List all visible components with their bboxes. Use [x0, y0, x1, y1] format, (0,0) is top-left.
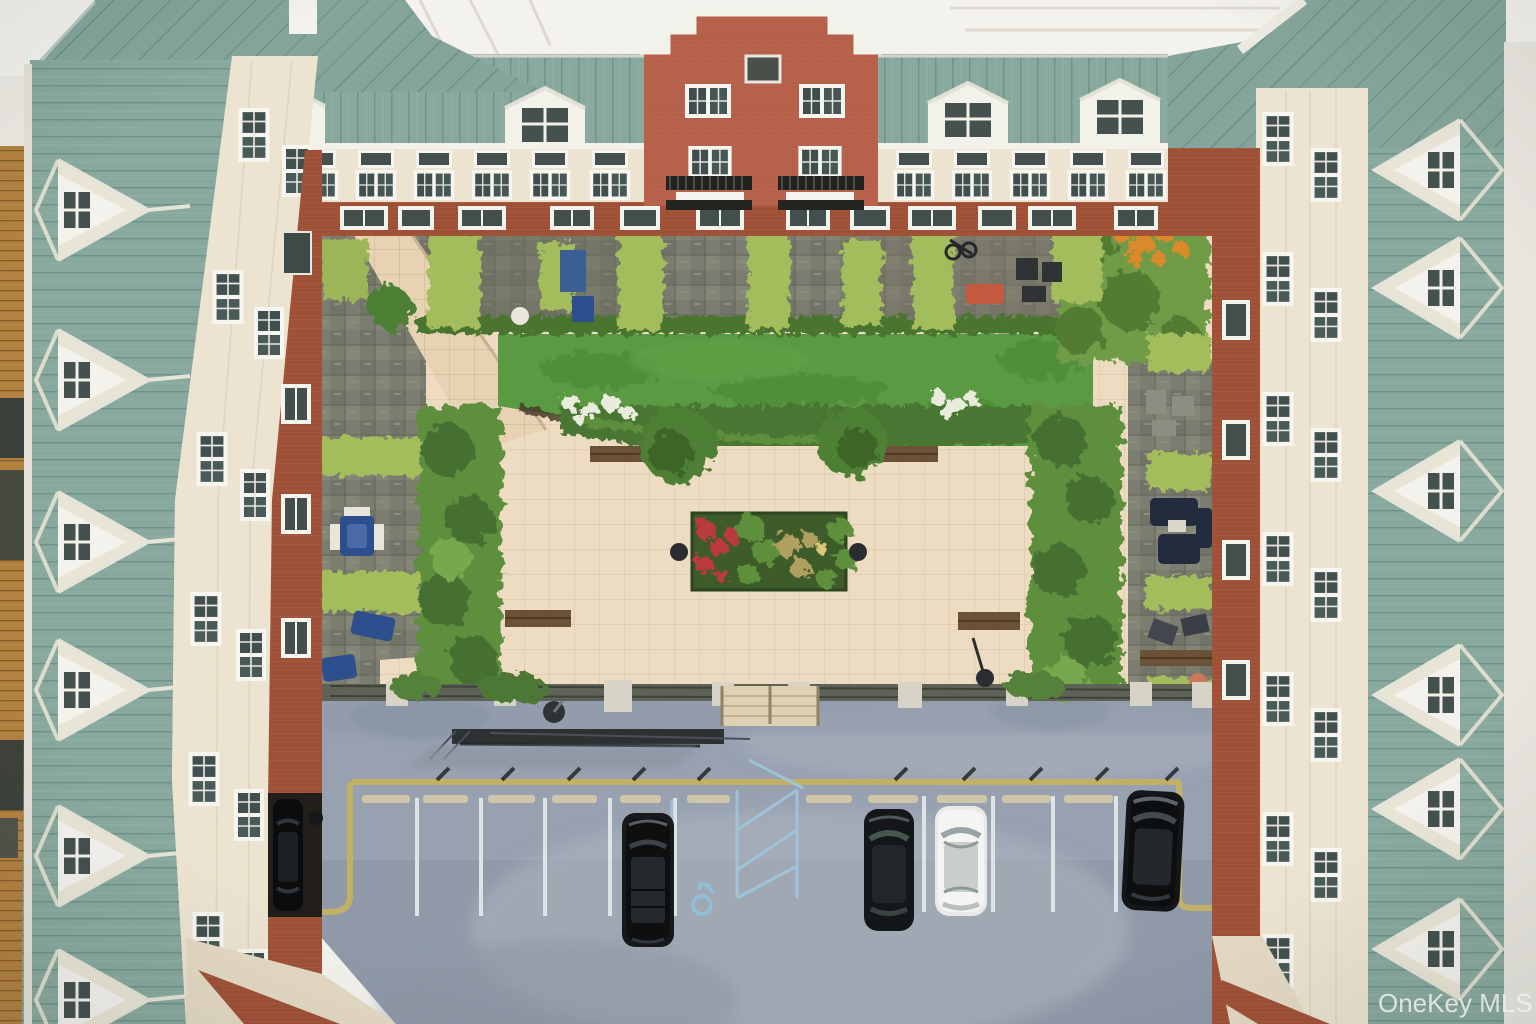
svg-text:OneKey MLS: OneKey MLS: [1378, 988, 1533, 1018]
